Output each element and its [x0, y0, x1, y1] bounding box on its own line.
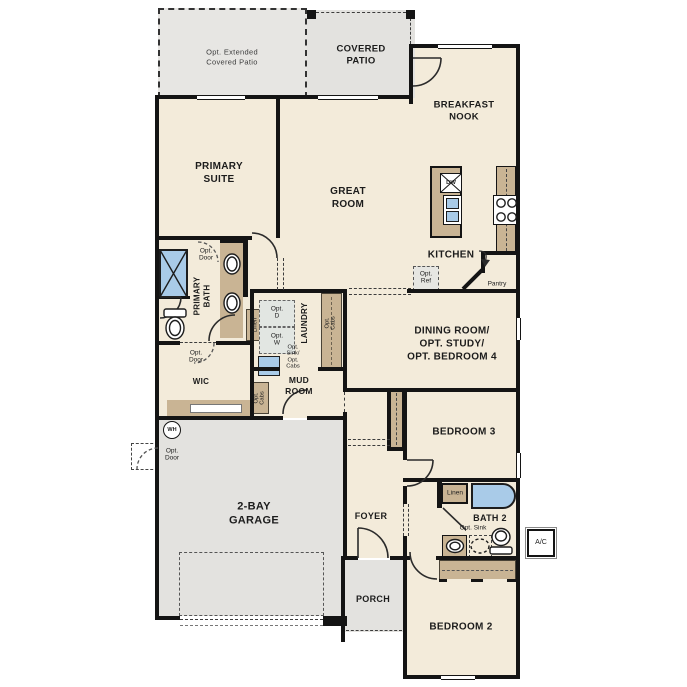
opening-great-dining: [349, 294, 411, 295]
wall: [243, 237, 248, 297]
room-label-kitchen: KITCHEN: [428, 249, 475, 262]
wall: [403, 478, 520, 482]
opening-foyer-hall: [403, 504, 404, 536]
floorplan: Opt. Extended Covered Patio COVERED PATI…: [0, 0, 687, 687]
primary-vanity: [220, 243, 243, 338]
garage-door-recess: [179, 552, 324, 616]
wall: [437, 478, 442, 508]
opening-foyer-top: [348, 439, 390, 440]
opening-foyer-hall: [408, 504, 409, 536]
wall: [276, 95, 280, 238]
wall: [343, 412, 347, 558]
room-label-primary-suite: PRIMARY SUITE: [195, 160, 243, 186]
label-linen-bath2: Linen: [447, 489, 463, 496]
room-label-opt-extended-patio: Opt. Extended Covered Patio: [206, 47, 258, 67]
window: [441, 675, 475, 680]
label-opt-door: Opt. Door: [189, 350, 203, 365]
wall: [409, 44, 413, 104]
room-label-great-room: GREAT ROOM: [330, 185, 366, 211]
cooktop-box: [493, 195, 517, 225]
laundry-cabs-line: [331, 297, 332, 365]
bed2-closet-opening: [483, 579, 507, 582]
bath2-opt-sink-cabinet: [469, 535, 492, 558]
window: [197, 95, 245, 100]
label-linen-primary: Linen: [253, 318, 260, 333]
label-opt-ref: Opt. Ref: [420, 271, 432, 286]
patio-post-line: [410, 18, 411, 44]
room-label-covered-patio: COVERED PATIO: [336, 44, 385, 69]
island-sink-basin: [446, 211, 459, 222]
wall: [387, 390, 390, 450]
wall: [155, 616, 180, 620]
garage-door-line: [180, 619, 323, 620]
wall: [216, 341, 254, 345]
window: [516, 453, 521, 478]
room-label-breakfast-nook: BREAKFAST NOOK: [434, 100, 495, 125]
label-opt-cabs: Opt. Cabs: [325, 316, 338, 330]
wall: [516, 44, 520, 679]
garage-door-line: [180, 625, 323, 626]
label-opt-sink-cabs: Opt. Sink/ Opt. Cabs: [286, 344, 300, 370]
label-opt-door: Opt. Door: [199, 248, 213, 263]
label-dw: DW: [446, 180, 456, 186]
room-label-garage: 2-BAY GARAGE: [229, 500, 279, 529]
garage-opt-door-box: [131, 443, 158, 470]
label-ac: A/C: [535, 539, 547, 547]
opening-hall-bath: [277, 258, 278, 290]
wall: [403, 556, 410, 560]
wall: [343, 289, 347, 392]
label-opt-sink: Opt. Sink: [460, 524, 487, 531]
opening-hall-bath: [283, 258, 284, 290]
wall: [318, 367, 345, 371]
bed3-closet-line: [396, 393, 397, 445]
wall: [155, 236, 252, 240]
room-label-primary-bath: PRIMARY BATH: [193, 277, 214, 316]
label-opt-cabs: Opt. Cabs: [254, 391, 267, 405]
label-opt-d: Opt. D: [271, 306, 283, 321]
wall: [250, 367, 280, 371]
bed2-closet-line: [442, 570, 513, 571]
wic-opt-door-opening: [180, 342, 216, 343]
window: [516, 318, 521, 340]
wall: [436, 556, 520, 560]
bed2-closet-opening: [447, 579, 471, 582]
island-sink-basin: [446, 198, 459, 209]
label-opt-w: Opt. W: [271, 333, 283, 348]
room-label-wic: WIC: [193, 377, 209, 387]
wall: [155, 416, 283, 420]
wic-shelf-inner: [190, 404, 242, 413]
patio-post: [406, 10, 415, 19]
laundry-opt-sink: [258, 356, 280, 376]
vanity-cap: [220, 240, 243, 243]
wall: [158, 296, 190, 299]
room-label-porch: PORCH: [356, 594, 390, 606]
room-label-bedroom3: BEDROOM 3: [432, 426, 495, 439]
porch-edge: [346, 630, 402, 631]
bathtub-icon: [471, 483, 516, 509]
opening-foyer-top: [348, 445, 390, 446]
wall: [343, 388, 520, 392]
label-wh: WH: [167, 427, 176, 433]
shower-icon: [159, 249, 188, 298]
room-label-foyer: FOYER: [355, 511, 388, 523]
wall: [155, 95, 159, 620]
wall: [250, 289, 347, 293]
opening-great-dining: [349, 288, 411, 289]
label-pantry: Pantry: [488, 280, 507, 287]
room-label-mud-room: MUD ROOM: [285, 375, 313, 397]
patio-slider-window: [318, 95, 378, 100]
window: [438, 44, 492, 49]
wall: [307, 416, 347, 420]
wall: [481, 251, 520, 255]
room-label-bedroom2: BEDROOM 2: [429, 621, 492, 634]
wall: [155, 341, 180, 345]
room-label-bath2: BATH 2: [473, 513, 507, 525]
wall: [341, 556, 345, 642]
wall: [403, 486, 407, 504]
wall: [403, 556, 407, 679]
wall: [323, 616, 347, 626]
patio-post: [307, 10, 316, 19]
opening-mud-foyer: [344, 392, 345, 412]
wall: [387, 448, 404, 451]
room-label-laundry: LAUNDRY: [300, 303, 310, 344]
label-opt-door: Opt. Door: [165, 448, 179, 463]
bath2-sink-cabinet: [442, 535, 467, 558]
patio-roof-line: [316, 12, 406, 13]
room-label-dining: DINING ROOM/ OPT. STUDY/ OPT. BEDROOM 4: [407, 325, 497, 364]
